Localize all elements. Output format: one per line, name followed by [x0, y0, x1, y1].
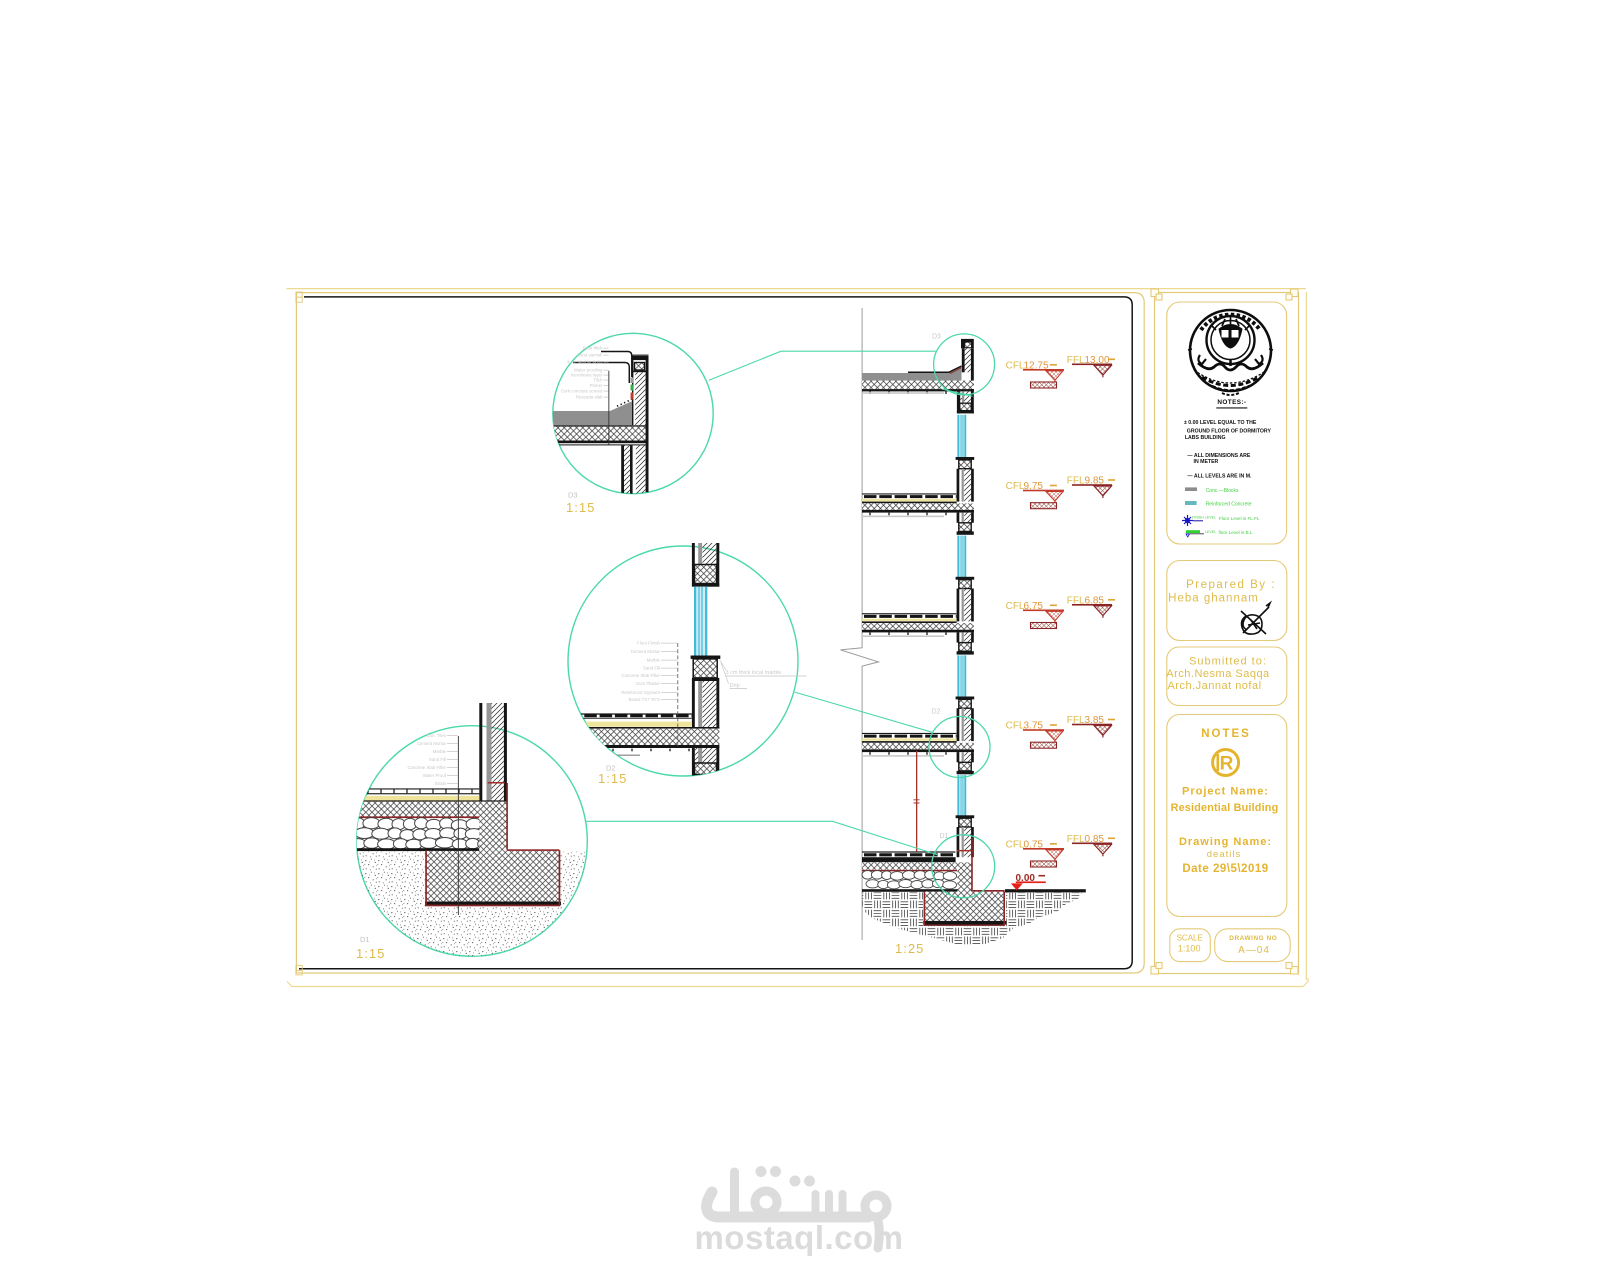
svg-text:Sand Fill: Sand Fill — [429, 757, 446, 762]
svg-text:Con. Tiles: Con. Tiles — [426, 733, 446, 738]
svg-text:CFL: CFL — [1006, 839, 1025, 850]
svg-text:D1: D1 — [360, 935, 370, 944]
svg-text:1:100: 1:100 — [1178, 944, 1201, 954]
svg-text:Heba ghannam: Heba ghannam — [1168, 593, 1259, 605]
svg-text:LEVEL: LEVEL — [1205, 530, 1216, 534]
svg-text:CFL: CFL — [1006, 601, 1025, 612]
svg-text:Project Name:: Project Name: — [1182, 786, 1269, 798]
svg-text:Arch.Jannat nofal: Arch.Jannat nofal — [1167, 680, 1261, 692]
svg-text:Sand Fill: Sand Fill — [643, 666, 660, 671]
svg-text:Tilch: Tilch — [593, 378, 603, 383]
svg-text:Concrete Slab Filler: Concrete Slab Filler — [621, 673, 660, 678]
svg-text:LABS BUILDING: LABS BUILDING — [1185, 435, 1226, 441]
svg-text:± 0.00 LEVEL EQUAL TO THE: ± 0.00 LEVEL EQUAL TO THE — [1184, 420, 1257, 426]
svg-text:Prepared By :: Prepared By : — [1186, 579, 1276, 591]
svg-text:3 cm thick local marble: 3 cm thick local marble — [726, 670, 782, 676]
svg-text:Cork concrete screed: Cork concrete screed — [561, 389, 603, 394]
svg-text:Reinforced Concrete: Reinforced Concrete — [1206, 501, 1252, 507]
svg-text:Arch.Nesma Saqqa: Arch.Nesma Saqqa — [1166, 668, 1270, 680]
svg-text:floor Level is B.L: floor Level is B.L — [1219, 530, 1253, 535]
svg-text:DRAWING NO: DRAWING NO — [1229, 935, 1277, 942]
svg-text:Marble: Marble — [433, 749, 447, 754]
svg-text:SCALE: SCALE — [1177, 934, 1203, 943]
svg-text:Floor Level is FL.FL: Floor Level is FL.FL — [1219, 516, 1260, 521]
svg-text:1:25: 1:25 — [895, 941, 924, 956]
svg-text:D3: D3 — [568, 491, 578, 500]
svg-text:Strain: Strain — [435, 781, 447, 786]
svg-text:Cement Mortar: Cement Mortar — [417, 741, 447, 746]
svg-text:CFL: CFL — [1006, 721, 1025, 732]
svg-text:— ALL DIMENSIONS ARE: — ALL DIMENSIONS ARE — [1187, 453, 1250, 459]
svg-text:1:15: 1:15 — [356, 946, 385, 961]
svg-text:GROUND FLOOR OF DORMITORY: GROUND FLOOR OF DORMITORY — [1187, 428, 1272, 434]
svg-text:— ALL LEVELS ARE IN M.: — ALL LEVELS ARE IN M. — [1187, 473, 1252, 479]
svg-text:1:15: 1:15 — [566, 500, 595, 515]
svg-text:D3: D3 — [932, 334, 941, 341]
svg-text:D2: D2 — [932, 709, 941, 716]
svg-text:8 cm thick: 8 cm thick — [583, 346, 604, 351]
svg-text:Marble: Marble — [647, 658, 661, 663]
svg-text:A—04: A—04 — [1238, 945, 1270, 956]
svg-text:Conc.—Blocks: Conc.—Blocks — [1206, 488, 1239, 494]
svg-text:Concrete Slab Filler: Concrete Slab Filler — [407, 765, 446, 770]
svg-text:deatils: deatils — [1207, 849, 1241, 860]
svg-text:Primer: Primer — [590, 383, 603, 388]
svg-text:CFL: CFL — [1006, 360, 1025, 371]
svg-text:FINISH LEVEL: FINISH LEVEL — [1192, 516, 1216, 520]
svg-text:CFL: CFL — [1006, 481, 1025, 492]
svg-text:IN METER: IN METER — [1194, 459, 1219, 465]
svg-text:NOTES: NOTES — [1201, 728, 1251, 740]
svg-text:4 cm Marble sighs: 4 cm Marble sighs — [567, 360, 603, 365]
svg-text:Floor Finish: Floor Finish — [637, 641, 660, 646]
svg-text:Board 7X7 TK'S: Board 7X7 TK'S — [629, 697, 660, 702]
svg-text:bond varnish: bond varnish — [577, 353, 603, 358]
svg-text:Residential Building: Residential Building — [1171, 802, 1279, 814]
svg-text:Drawing Name:: Drawing Name: — [1179, 836, 1272, 848]
svg-text:D1: D1 — [940, 833, 949, 840]
svg-text:Cement Mortar: Cement Mortar — [631, 649, 661, 654]
svg-text:Submitted to:: Submitted to: — [1189, 656, 1267, 668]
svg-text:Ruscada slab: Ruscada slab — [576, 395, 603, 400]
svg-text:mostaql.com: mostaql.com — [694, 1219, 903, 1256]
svg-text:Drip: Drip — [730, 683, 740, 689]
svg-text:Gum Plaster: Gum Plaster — [636, 681, 661, 686]
svg-text:Reinforced Gypsum: Reinforced Gypsum — [621, 690, 660, 695]
svg-text:R: R — [1220, 754, 1234, 775]
svg-text:Water Proof: Water Proof — [423, 773, 447, 778]
svg-text:NOTES:-: NOTES:- — [1217, 399, 1246, 406]
svg-text:Date 29\5\2019: Date 29\5\2019 — [1182, 863, 1268, 875]
svg-text:1:15: 1:15 — [598, 771, 627, 786]
